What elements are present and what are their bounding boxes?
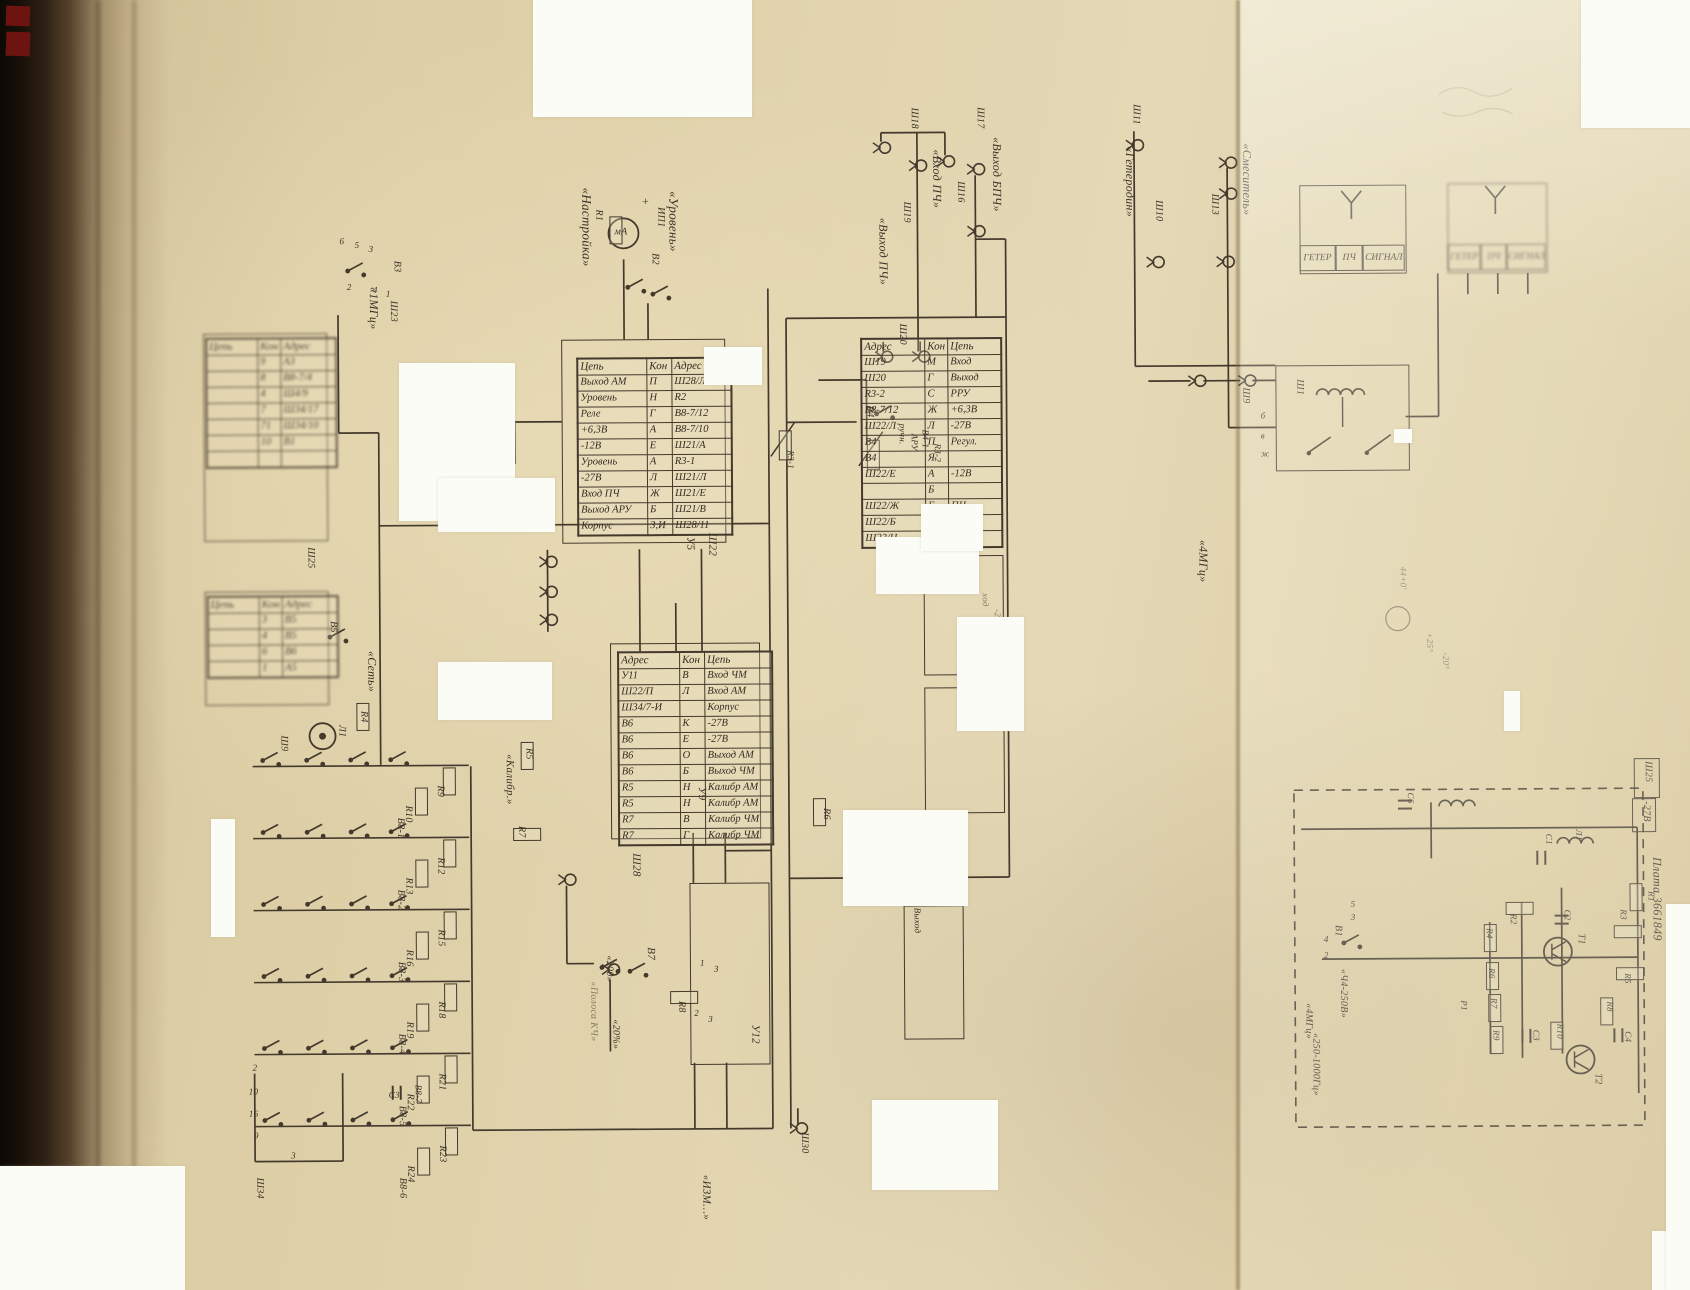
switch-contact-icon [367, 1122, 372, 1127]
label-R1: R1 [1647, 891, 1656, 902]
resistor-icon [1629, 883, 1642, 911]
switch-contact-icon [365, 906, 370, 911]
label-В8-4: В8-4 [396, 1034, 406, 1055]
table-cell: Н [647, 391, 672, 407]
label-У5: У5 [684, 537, 695, 551]
u9-table: АдресКонЦепьУ11ВВход ЧМШ22/ПЛВход АМШ34/… [617, 650, 774, 846]
label-5: 5 [1351, 900, 1356, 909]
label-В1: В1 [1333, 925, 1343, 937]
label-4: 4 [373, 286, 378, 295]
switch-contact-icon [321, 834, 326, 839]
table-cell: Б [648, 503, 673, 519]
label-Р1: Р1 [1459, 1000, 1468, 1011]
connector-arrow-icon [967, 226, 974, 236]
switch-contact-icon [641, 289, 646, 294]
table-cell: В6 [618, 717, 680, 733]
label-3: 3 [714, 965, 719, 974]
label-ручн.: ручн. [898, 424, 907, 445]
table-cell: В1 [281, 435, 337, 451]
label-2: 2 [694, 1009, 699, 1018]
label-Выход ПЧ: «Выход ПЧ» [877, 218, 889, 285]
table-header-cell: Кон [259, 596, 282, 613]
table-cell: 7 [258, 403, 281, 419]
table-row: 8В8-7/4 [206, 371, 336, 388]
table-cell: Реле [578, 407, 648, 423]
table-cell [206, 355, 258, 371]
switch-row-bus [253, 837, 469, 838]
label-250-1000Гц: «250-1000Гц» [1310, 1033, 1320, 1096]
table-cell: Калибр АМ [705, 780, 773, 796]
table-cell: Ш21/А [672, 438, 732, 454]
switch-lever-icon [352, 896, 367, 904]
table-cell: К [680, 716, 705, 732]
table-row: R7ВКалибр ЧМ [619, 812, 773, 829]
label-3: 3 [291, 1151, 296, 1160]
label-1: 1 [700, 959, 705, 968]
switch-lever-icon [348, 263, 363, 271]
switch-contact-icon [616, 969, 621, 974]
label-R3-1: R3-1 [786, 450, 795, 469]
label-Ш19: Ш19 [901, 202, 911, 223]
label-3: 3 [708, 1015, 713, 1024]
table-cell [281, 451, 337, 468]
switch-contact-icon [344, 639, 349, 644]
label-Полоса КЧ: «Полоса КЧ» [588, 982, 598, 1042]
table-cell: З,И [648, 519, 673, 536]
label-R4: R4 [358, 711, 368, 723]
table-row: +6,3ВАВ8-7/10 [578, 422, 732, 439]
table-cell [258, 451, 281, 468]
table-cell: В [680, 668, 705, 684]
switch-row-bus [253, 765, 469, 766]
wire-segment [786, 317, 1006, 318]
table-header-cell: Адрес [281, 338, 337, 355]
switch-contact-icon [361, 273, 366, 278]
label-1: 1 [386, 290, 391, 299]
label-2: 2 [347, 283, 352, 292]
table-row: Вход ПЧЖШ21/Е [578, 486, 732, 503]
capacitor-icon [1522, 1029, 1530, 1043]
connector-arrow-icon [1147, 257, 1154, 267]
connector-arrow-icon [873, 143, 880, 153]
label-У6: У6 [518, 512, 529, 526]
table-cell: Выход АМ [577, 375, 647, 391]
label-В8-5: В8-5 [397, 1106, 407, 1127]
table-cell [680, 700, 705, 716]
transistor-icon [1552, 942, 1566, 962]
label-Ш20: Ш20 [897, 324, 907, 345]
switch-contact-icon [364, 762, 369, 767]
label-В8-1: В8-1 [395, 818, 405, 839]
table-cell: Ш34/17 [281, 403, 337, 419]
table-row: В6Е-27В [619, 732, 773, 749]
table-row: Ш22/ЕА-12В [862, 467, 1002, 484]
transistor-icon [1544, 938, 1572, 966]
switch-lever-icon [307, 752, 322, 760]
label--27В: -27В [993, 609, 1002, 628]
table-row: В6БВыход ЧМ [619, 764, 773, 781]
table-cell: 1 [260, 661, 283, 678]
switch-lever-icon [352, 968, 367, 976]
table-cell: Е [926, 499, 949, 515]
wire-segment [1006, 317, 1009, 877]
table-cell: Ш22/Е [862, 467, 926, 483]
label-Настройка: «Настройка» [580, 188, 593, 267]
table-cell: В8-7/12 [672, 406, 732, 422]
wire-segment [338, 315, 339, 433]
left-table-upper: ЦепьКонАдрес9А38В8-7/44Ш4/97Ш34/1771Ш34/… [205, 337, 338, 469]
connector-arrow-icon [558, 875, 565, 885]
rf-unit-cell-label: ГЕТЕР [1300, 245, 1336, 271]
label-R12: R12 [435, 857, 445, 874]
table-cell: Калибр АМ [705, 796, 773, 812]
label-Ш21: Ш21 [492, 460, 502, 481]
table-cell: R3-2 [861, 387, 925, 403]
wire-segment [473, 1128, 773, 1130]
table-header-cell: Адрес [618, 652, 680, 669]
label-Ш17: Ш17 [975, 107, 985, 128]
table-cell: 8 [258, 371, 281, 387]
table-cell: Г [681, 828, 706, 845]
table-row: -12ВЕШ21/А [578, 438, 732, 455]
switch-row-bus [254, 909, 470, 910]
label-R1: R1 [593, 209, 603, 221]
label-В3: В3 [392, 261, 402, 273]
connector-arrow-icon [539, 557, 546, 567]
label-В8-3: В8-3 [396, 962, 406, 983]
table-header-cell: Цепь [206, 339, 258, 356]
scanned-schematic-page: ГЕТЕРПЧСИГНАЛГЕТЕРПЧСИГНАЛЦепьКонАдресВы… [0, 0, 1690, 1290]
table-cell: Ш22/П [618, 685, 680, 701]
table-cell: Ж [925, 403, 948, 419]
label-R18: R18 [436, 1001, 446, 1018]
table-cell: Ш22/Ж [862, 499, 926, 515]
table-cell [206, 387, 258, 403]
label-Т2: Т2 [1593, 1073, 1603, 1084]
switch-contact-icon [320, 762, 325, 767]
wire-segment [975, 175, 976, 317]
switch-lever-icon [1344, 935, 1359, 943]
switch-lever-icon [351, 752, 366, 760]
wire-segment [701, 549, 702, 651]
label-R9: R9 [1491, 1030, 1500, 1041]
label-R10: R10 [1555, 1024, 1564, 1039]
resistor-icon [415, 860, 428, 888]
label-R6: R6 [821, 808, 831, 820]
table-row: 1А5 [208, 661, 338, 678]
label-С2: С2 [1563, 910, 1572, 921]
table-row: У11ВВход ЧМ [618, 668, 772, 685]
label--27В: -27В [1641, 801, 1651, 822]
table-cell: Ш21/Л [672, 470, 732, 486]
label-С3: С3 [1531, 1030, 1540, 1041]
table-cell: Б [680, 764, 705, 780]
capacitor-icon [1614, 1028, 1622, 1042]
label-R7: R7 [516, 826, 526, 838]
switch-lever-icon [264, 1040, 279, 1048]
red-corner-mark [6, 6, 31, 27]
table-cell: Уровень [577, 391, 647, 407]
table-cell: R7 [619, 829, 681, 846]
switch-contact-icon [278, 1050, 283, 1055]
wire-segment [1637, 827, 1639, 1093]
label-У9: У9 [696, 787, 707, 801]
label-Ш18: Ш18 [909, 108, 919, 129]
label-Сеть: «Сеть» [366, 651, 378, 692]
wire-segment [1322, 957, 1638, 959]
label-Ш11: Ш11 [1131, 104, 1141, 125]
label-В4: В4 [865, 406, 875, 418]
table-cell [949, 483, 1003, 499]
switch-lever-icon [653, 286, 668, 294]
table-cell: Е [680, 732, 705, 748]
table-cell: Л [647, 471, 672, 487]
label-Выход БПЧ: «Выход БПЧ» [991, 137, 1003, 212]
label-Ш9: Ш9 [1240, 388, 1250, 404]
table-cell: В8-7/10 [672, 422, 732, 438]
table-cell: Корпус [578, 519, 648, 536]
label-Гетеродин: «Гетеродин» [1124, 146, 1136, 217]
table-row: 7Ш34/17 [207, 403, 337, 420]
label-Ш25: Ш25 [1643, 761, 1653, 782]
label-R2: R2 [1509, 914, 1518, 925]
table-row: 71Ш34/10 [207, 419, 337, 436]
table-cell [206, 371, 258, 387]
label-ж: ж [1261, 449, 1270, 458]
table-cell: Вход ПЧ [578, 487, 648, 503]
table-cell: Г [925, 371, 948, 387]
label-10: 10 [249, 1088, 259, 1097]
transistor-icon [1574, 1049, 1588, 1069]
label-Калибр.: «Калибр.» [504, 754, 515, 805]
switch-contact-icon [666, 296, 671, 301]
resistor-icon [415, 788, 428, 816]
label-в: в [1261, 431, 1265, 440]
label-Ш16: Ш16 [955, 181, 965, 202]
switch-lever-icon [628, 279, 643, 287]
label-Ш34: Ш34 [254, 1178, 264, 1199]
table-cell: -27В [948, 419, 1002, 435]
label-В5: В5 [328, 621, 338, 633]
label-R8: R8 [1605, 1001, 1614, 1012]
label-6: 6 [339, 237, 344, 246]
switch-contact-icon [322, 978, 327, 983]
table-cell: Выход АРУ [578, 503, 648, 519]
table-row: 4Ш4/9 [206, 387, 336, 404]
table-cell: Г [647, 407, 672, 423]
switch-row-bus [254, 981, 470, 982]
table-row: 6В6 [208, 645, 338, 662]
table-cell: -27В [705, 732, 773, 748]
wire-segment [1438, 273, 1439, 416]
connector-arrow-icon [540, 615, 547, 625]
wire-segment [1227, 168, 1229, 428]
switch-lever-icon [351, 824, 366, 832]
label-R3-2: R3-2 [933, 443, 942, 462]
table-cell [207, 419, 259, 435]
switch-contact-icon [365, 834, 370, 839]
wire-segment [789, 877, 1009, 878]
table-cell: 6 [259, 645, 282, 661]
table-header-cell: Кон [647, 358, 672, 375]
switch-contact-icon [276, 762, 281, 767]
label-R4: R4 [1485, 928, 1494, 939]
connector-arrow-icon [540, 587, 547, 597]
table-cell: Ш19 [861, 355, 925, 371]
table-header-cell: Адрес [282, 596, 338, 613]
table-cell: Выход АМ [705, 748, 773, 764]
table-cell [207, 435, 259, 451]
table-header-cell: Цепь [705, 651, 773, 668]
label-Т1: Т1 [1576, 933, 1586, 944]
wire-segment [379, 433, 381, 765]
label-Ш28: Ш28 [630, 853, 641, 876]
table-cell: Уровень [578, 455, 648, 471]
table-cell: Ш21/Е [673, 486, 733, 502]
connector-arrow-icon [909, 161, 916, 171]
table-cell: Е [647, 439, 672, 455]
switch-lever-icon [308, 1040, 323, 1048]
table-row: Ш20ГВыход [861, 371, 1001, 388]
label-С4: С4 [1623, 1031, 1632, 1042]
table-cell: R7 [619, 813, 681, 829]
table-cell: -27В [705, 716, 773, 732]
switch-lever-icon [265, 1112, 280, 1120]
table-cell: Калибр ЧМ [706, 828, 774, 845]
label-В8-6: В8-6 [397, 1178, 407, 1199]
label-R3: R3 [1619, 909, 1628, 920]
switch-lever-icon [309, 1112, 324, 1120]
label-4: 4 [1324, 935, 1329, 944]
table-cell: ПЧ [949, 499, 1003, 515]
table-cell: В6 [282, 645, 338, 661]
wire-segment [1301, 827, 1637, 829]
label-+: + [641, 195, 649, 207]
table-row: Ш22/БВАРУ [862, 515, 1002, 532]
switch-contact-icon [279, 1122, 284, 1127]
label-Ш10: Ш10 [1153, 200, 1163, 221]
label-Выход: Выход [913, 908, 922, 934]
label-В7: В7 [645, 947, 656, 960]
switch-contact-icon [366, 978, 371, 983]
table-row: Ш34/7-ИКорпус [618, 700, 772, 717]
table-cell: +6,3В [948, 403, 1002, 419]
table-cell [862, 483, 926, 499]
label-R7: R7 [1489, 998, 1498, 1009]
transistor-icon [1566, 1045, 1594, 1073]
label-ИЗМ…: «ИЗМ…» [700, 1175, 711, 1220]
label-мА: мА [614, 227, 627, 237]
label-Л1: Л1 [1574, 829, 1583, 840]
label-ход: ход [981, 593, 990, 607]
table-cell: +6,3В [578, 423, 648, 439]
table-cell: -12В [948, 467, 1002, 483]
outline-box [924, 687, 1005, 813]
label-АРУ: АРУ [910, 434, 919, 451]
table-row: R7ГКалибр ЧМ [619, 828, 773, 845]
label-Вход ПЧ: «Вход ПЧ» [931, 149, 943, 208]
label-Ш13: Ш13 [1209, 194, 1219, 215]
table-cell [208, 629, 260, 645]
table-cell: Вход [948, 355, 1002, 371]
label-2: 2 [253, 1064, 258, 1073]
table-cell: В4 [862, 451, 926, 467]
wire-segment [343, 1073, 344, 1161]
table-row: R3-2СРРУ [861, 387, 1001, 404]
switch-contact-icon [278, 978, 283, 983]
table-header-cell: Цепь [208, 597, 260, 614]
label-В2: В2 [650, 253, 660, 265]
label-2: 2 [1324, 951, 1329, 960]
label-У12: У12 [749, 1025, 760, 1044]
label-ИП1: ИП1 [655, 207, 665, 227]
switch-contact-icon [277, 906, 282, 911]
table-cell: R2 [672, 390, 732, 406]
table-row: Ш22/НИ [862, 531, 1002, 548]
label-В4-1: В4-1 [921, 429, 930, 448]
switch-contact-icon [1357, 944, 1362, 949]
label-В8-7: В8-7 [414, 1085, 423, 1104]
table-cell: Ш22/Б [862, 515, 926, 531]
table-cell: Ш22/Н [862, 531, 926, 548]
table-cell: R5 [619, 781, 681, 797]
table-cell: 9 [258, 355, 281, 371]
table-cell: П [647, 375, 672, 391]
rf-unit-cell-label: ПЧ [1335, 245, 1363, 271]
table-cell: Ш34/7-И [618, 701, 680, 717]
label-Ш25: Ш25 [305, 547, 315, 568]
label-9: 9 [254, 1132, 259, 1141]
table-cell: Ш20 [861, 371, 925, 387]
table-row: В6ОВыход АМ [619, 748, 773, 765]
table-cell: Калибр ЧМ [706, 812, 774, 828]
switch-contact-icon [323, 1122, 328, 1127]
table-cell: А3 [281, 355, 337, 371]
switch-lever-icon [264, 896, 279, 904]
table-cell [949, 531, 1003, 548]
label-3: 3 [369, 245, 374, 254]
label-R8: R8 [676, 1001, 686, 1013]
table-cell: Ш28/11 [673, 518, 733, 535]
table-cell [208, 645, 260, 661]
table-cell: 10 [258, 435, 281, 451]
table-cell: R5 [619, 797, 681, 813]
rf-unit-cells: ГЕТЕРПЧСИГНАЛ [1300, 245, 1405, 272]
table-cell: И [926, 531, 949, 548]
label-Ш1: Ш1 [1294, 379, 1304, 395]
label-Уровень: «Уровень» [667, 191, 680, 252]
label-Ш22: Ш22 [706, 533, 717, 556]
switch-lever-icon [264, 968, 279, 976]
table-header-cell: Цепь [948, 338, 1002, 355]
table-cell: Выход [948, 371, 1002, 387]
table-cell: Вход АМ [705, 684, 773, 700]
wire-segment [1135, 365, 1275, 366]
resistor-icon [1614, 925, 1642, 938]
switch-row-bus [255, 1125, 471, 1126]
red-corner-mark [6, 32, 31, 57]
table-row: Ш22/ЖЕПЧ [862, 499, 1002, 516]
table-cell: -27В [578, 471, 648, 487]
switch-lever-icon [630, 963, 645, 971]
table-cell: 71 [258, 419, 281, 435]
switch-row-bus [254, 1053, 470, 1054]
switch-lever-icon [308, 896, 323, 904]
table-row: В4ПРегул. [862, 435, 1002, 452]
resistor-icon [417, 1148, 430, 1176]
table-cell: Ш4/9 [281, 387, 337, 403]
table-cell [207, 451, 259, 468]
